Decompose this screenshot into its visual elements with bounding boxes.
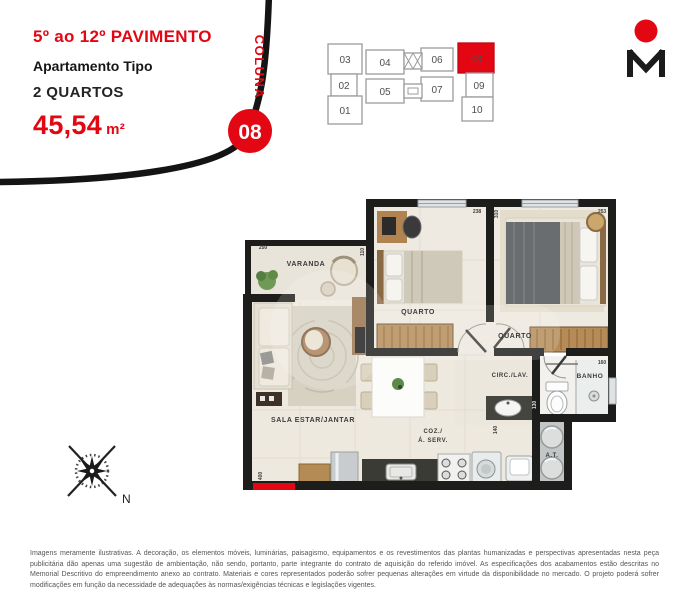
brochure-page: 5º ao 12º PAVIMENTO Apartamento Tipo 2 Q… (0, 0, 689, 600)
unit-badge-number: 08 (238, 121, 262, 144)
stove (438, 454, 470, 483)
unit-05-number: 05 (379, 87, 391, 98)
circ-label: CIRC./LAV. (492, 373, 529, 379)
dim-400: 400 (258, 472, 264, 481)
disclaimer-text: Imagens meramente ilustrativas. A decora… (30, 549, 659, 591)
round-mirror (587, 213, 605, 231)
toilet-tank (546, 382, 568, 391)
unit-04-number: 04 (379, 58, 391, 69)
toilet-bowl (547, 391, 567, 415)
unit-06-number: 06 (431, 55, 443, 66)
area-value: 45,54 (33, 110, 102, 140)
quarto2-label: QUARTO (498, 333, 532, 340)
key-plan: 01 02 03 04 05 06 07 08 09 10 (328, 43, 494, 124)
at-label: A.T. (545, 453, 558, 459)
compass-icon: N (68, 446, 131, 506)
logo-m-icon (629, 50, 663, 77)
water-tank-1 (541, 426, 563, 448)
sala-label: SALA ESTAR/JANTAR (271, 417, 355, 424)
unit-09-number: 09 (473, 81, 485, 92)
dim-140: 140 (493, 426, 499, 435)
dim-238: 238 (473, 209, 482, 215)
coz-label-line2: Á. SERV. (418, 437, 448, 444)
unit-02-number: 02 (338, 81, 350, 92)
dim-160: 160 (598, 360, 607, 366)
core-elevators-icon (404, 53, 422, 98)
unit-03-number: 03 (339, 55, 351, 66)
entrance-marker (253, 483, 295, 490)
quarto1-label: QUARTO (401, 309, 435, 316)
desk-chair (403, 216, 421, 238)
dim-250: 250 (259, 245, 268, 251)
brand-logo (629, 20, 663, 78)
unit-08-number: 08 (470, 54, 482, 65)
page-title: 5º ao 12º PAVIMENTO (33, 27, 212, 47)
varanda-label: VARANDA (287, 261, 326, 268)
dim-253: 253 (598, 209, 607, 215)
unit-01-number: 01 (339, 106, 351, 117)
cabinet (299, 464, 330, 482)
apartment-type-label: Apartamento Tipo (33, 58, 212, 74)
circ-lav-fixtures (486, 396, 532, 420)
area-label: 45,54m² (33, 110, 212, 141)
bedrooms-label: 2 QUARTOS (33, 84, 212, 101)
header-block: 5º ao 12º PAVIMENTO Apartamento Tipo 2 Q… (33, 27, 212, 141)
shower-area (576, 360, 608, 414)
area-unit: m² (106, 121, 125, 138)
logo-dot-icon (635, 20, 658, 43)
fridge (331, 452, 358, 482)
dim-310: 310 (494, 210, 500, 219)
dim-110: 110 (360, 248, 366, 256)
floor-plan: VARANDA QUARTO QUARTO SALA ESTAR/JANTAR … (243, 199, 616, 490)
column-label: COLUNA (252, 35, 267, 100)
north-label: N (122, 492, 131, 506)
water-tank-2 (541, 457, 563, 479)
coz-label-line1: COZ./ (424, 429, 443, 435)
banho-label: BANHO (577, 373, 604, 380)
unit-10-number: 10 (471, 105, 483, 116)
dim-130: 130 (532, 401, 538, 410)
unit-07-number: 07 (431, 85, 443, 96)
